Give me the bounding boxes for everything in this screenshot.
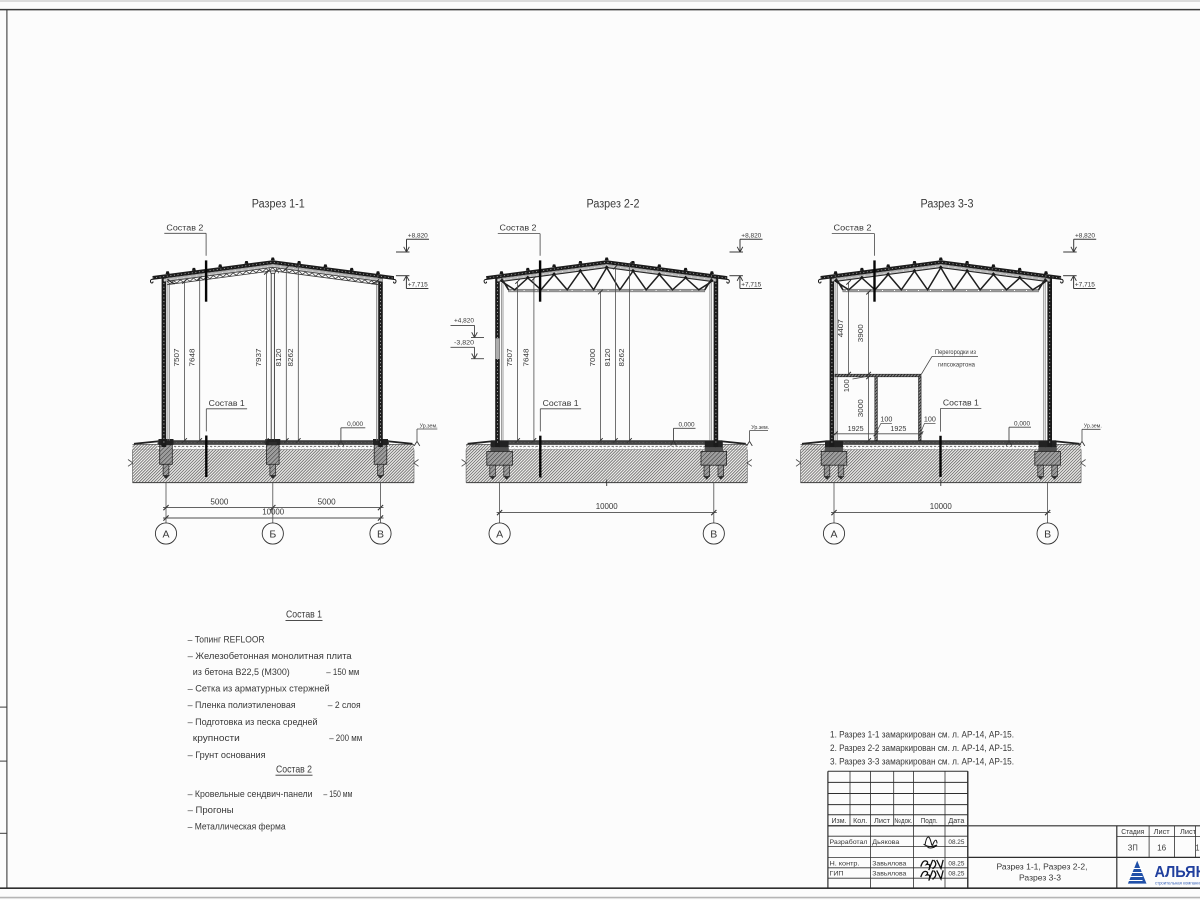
svg-text:2. Разрез 2-2 замаркирован см.: 2. Разрез 2-2 замаркирован см. л. АР-14,… [830,743,1014,753]
svg-text:08.25: 08.25 [948,860,964,867]
svg-text:– Сетка из арматурных стержней: – Сетка из арматурных стержней [188,684,330,695]
svg-text:5000: 5000 [210,498,229,507]
svg-text:Состав 1: Состав 1 [543,398,579,408]
svg-text:Состав 1: Состав 1 [209,398,245,408]
svg-text:1: 1 [1196,843,1200,852]
svg-text:5000: 5000 [318,498,337,507]
svg-text:Состав 2: Состав 2 [276,764,312,775]
svg-text:Дата: Дата [948,818,964,825]
svg-text:100: 100 [842,379,851,392]
svg-text:Состав 2: Состав 2 [834,223,872,233]
svg-text:10000: 10000 [596,502,619,511]
svg-text:8262: 8262 [617,349,626,367]
svg-text:– 2 слоя: – 2 слоя [328,700,361,711]
svg-text:8262: 8262 [286,349,295,367]
svg-text:10000: 10000 [930,502,953,511]
svg-text:7507: 7507 [505,349,514,367]
svg-text:Стадия: Стадия [1121,829,1144,836]
svg-text:4407: 4407 [836,319,845,337]
svg-text:ЗП: ЗП [1128,843,1138,852]
svg-text:– Пленка полиэтиленовая: – Пленка полиэтиленовая [188,700,296,711]
svg-text:– Топинг REFLOOR: – Топинг REFLOOR [188,634,265,645]
svg-text:В: В [710,528,717,540]
svg-text:3000: 3000 [856,399,865,417]
svg-text:Кол.: Кол. [853,818,867,825]
svg-text:Завьялова: Завьялова [872,871,906,878]
svg-text:– Кровельные сендвич-панели: – Кровельные сендвич-панели [188,789,313,800]
svg-text:Разрез 1-1, Разрез 2-2,: Разрез 1-1, Разрез 2-2, [997,862,1088,872]
svg-text:100: 100 [924,415,936,424]
svg-text:Ур.зем.: Ур.зем. [751,425,769,431]
svg-text:– 150 мм: – 150 мм [326,667,359,678]
svg-text:– Металлическая ферма: – Металлическая ферма [188,822,287,833]
svg-text:8120: 8120 [274,349,283,367]
svg-text:Лист: Лист [874,818,891,825]
svg-text:АЛЬЯНС: АЛЬЯНС [1155,864,1200,881]
svg-text:100: 100 [880,415,892,424]
svg-text:Разрез 2-2: Разрез 2-2 [587,199,640,211]
svg-text:+7,715: +7,715 [408,282,428,289]
svg-text:Разрез 3-3: Разрез 3-3 [921,199,974,211]
svg-text:Состав 2: Состав 2 [500,223,537,233]
svg-text:+8,820: +8,820 [741,233,761,240]
svg-text:Разработал: Разработал [830,838,868,846]
svg-text:08.25: 08.25 [948,871,964,878]
svg-text:16: 16 [1157,843,1166,852]
svg-text:Б: Б [269,528,276,540]
svg-text:8120: 8120 [603,349,612,367]
svg-text:Ур.зем.: Ур.зем. [1084,424,1102,430]
svg-text:из бетона В22,5 (М300): из бетона В22,5 (М300) [193,667,290,678]
svg-text:– Подготовка из песка средней: – Подготовка из песка средней [188,717,318,728]
svg-text:строительная компания: строительная компания [1155,880,1200,885]
svg-text:Подп.: Подп. [921,818,938,825]
svg-text:3900: 3900 [856,324,865,342]
svg-text:-3,820: -3,820 [454,340,474,347]
svg-text:В: В [377,528,384,540]
svg-text:Лист: Лист [1154,829,1171,836]
svg-text:А: А [496,528,503,540]
svg-text:Состав 1: Состав 1 [286,610,322,621]
svg-text:7648: 7648 [522,349,531,367]
svg-text:Состав 2: Состав 2 [166,222,203,232]
svg-text:Дьякова: Дьякова [872,839,899,846]
svg-text:7648: 7648 [187,349,196,367]
svg-text:Разрез 1-1: Разрез 1-1 [252,199,305,211]
svg-text:7937: 7937 [254,349,263,367]
svg-text:7000: 7000 [588,349,597,367]
svg-text:ГИП: ГИП [830,871,844,878]
svg-text:7507: 7507 [172,349,181,367]
svg-text:+7,715: +7,715 [1075,282,1095,289]
svg-text:3. Разрез 3-3 замаркирован см.: 3. Разрез 3-3 замаркирован см. л. АР-14,… [830,756,1014,766]
svg-text:0,000: 0,000 [347,421,363,428]
svg-text:10000: 10000 [262,508,285,517]
svg-text:Состав 1: Состав 1 [943,398,979,408]
svg-text:В: В [1044,528,1051,540]
svg-text:+4,820: +4,820 [454,318,474,325]
svg-text:А: А [162,528,169,540]
svg-text:1925: 1925 [890,424,906,433]
svg-text:Перегородки из: Перегородки из [935,349,976,356]
svg-text:Ур.зем.: Ур.зем. [420,423,438,429]
svg-text:– Грунт основания: – Грунт основания [188,750,266,761]
svg-text:Н. контр.: Н. контр. [830,860,860,867]
svg-text:– Прогоны: – Прогоны [188,805,234,816]
svg-text:№док.: №док. [894,818,912,825]
svg-text:крупности: крупности [193,733,240,744]
svg-text:Разрез 3-3: Разрез 3-3 [1019,873,1061,883]
svg-text:08.25: 08.25 [948,839,964,846]
svg-text:+8,820: +8,820 [1075,233,1095,240]
svg-text:0,000: 0,000 [1014,420,1030,427]
svg-text:Лист: Лист [1180,829,1197,836]
svg-text:+8,820: +8,820 [408,233,428,240]
svg-text:– 150 мм: – 150 мм [323,789,352,800]
svg-text:Завьялова: Завьялова [872,860,906,867]
svg-text:1. Разрез 1-1 замаркирован см.: 1. Разрез 1-1 замаркирован см. л. АР-14,… [830,730,1014,740]
svg-text:– 200 мм: – 200 мм [329,733,362,744]
svg-text:Изм.: Изм. [832,818,847,825]
svg-text:+7,715: +7,715 [741,282,761,289]
svg-text:1925: 1925 [848,424,864,433]
svg-text:– Железобетонная монолитная п: – Железобетонная монолитная плита [188,651,353,662]
svg-text:гипсокартона: гипсокартона [938,362,975,369]
svg-text:А: А [830,528,837,540]
svg-text:0,000: 0,000 [679,422,695,429]
